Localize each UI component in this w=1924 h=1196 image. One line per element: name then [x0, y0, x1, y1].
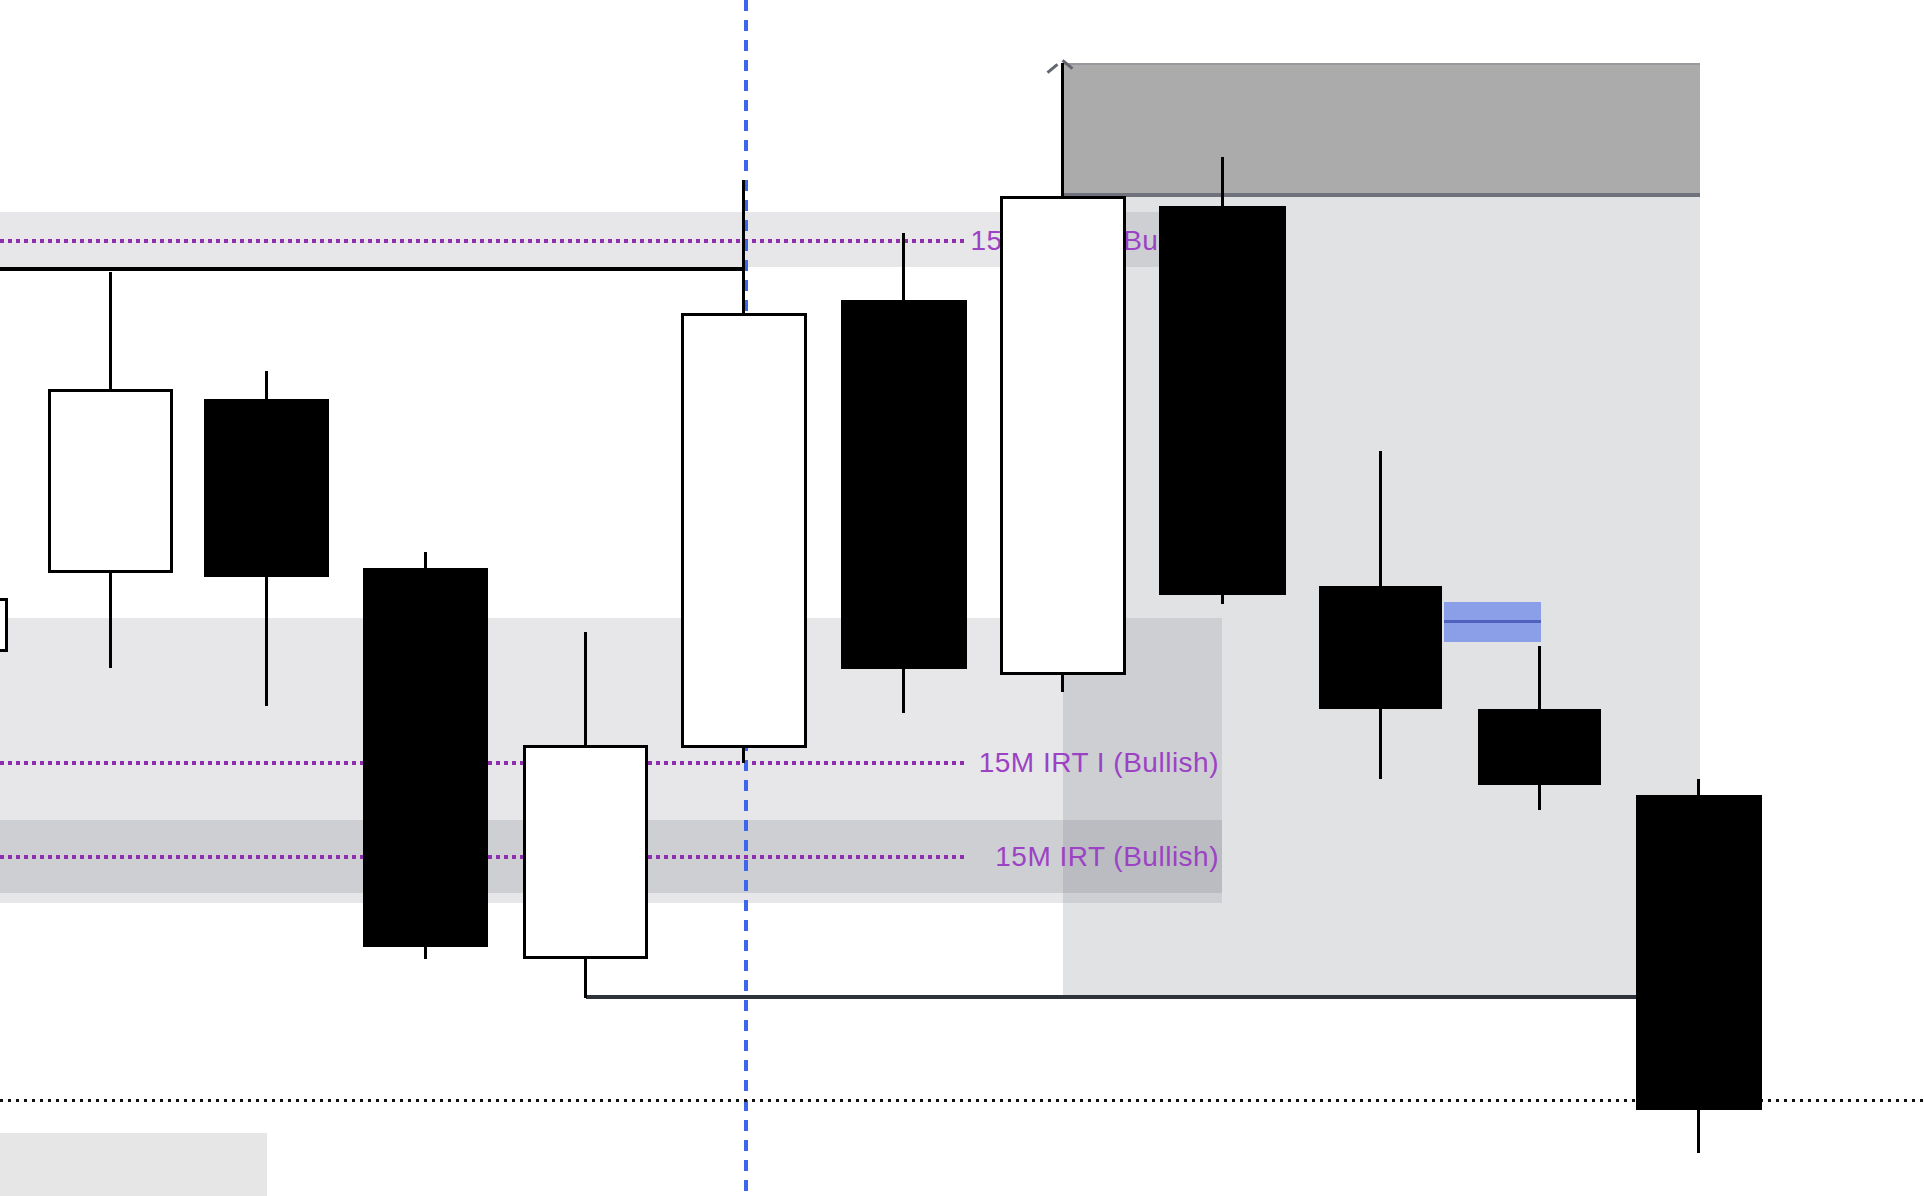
candle-body-bearish: [1478, 709, 1601, 785]
candle-body-bearish: [363, 568, 488, 947]
drawing-handle-mark[interactable]: [1047, 63, 1059, 74]
irt-level-label-bottom[interactable]: 15M IRT (Bullish): [995, 843, 1219, 871]
candle-body-bearish: [1319, 586, 1442, 709]
supply-header-box[interactable]: [1063, 63, 1700, 197]
candle-body-bearish: [204, 399, 329, 577]
candle-body-bullish: [681, 313, 807, 748]
low-structure-line[interactable]: [586, 995, 1690, 999]
candle-body-bullish: [1000, 196, 1126, 675]
candle-body-bullish: [48, 389, 173, 573]
upper-structure-line[interactable]: [0, 267, 745, 271]
candle-body-bearish: [1159, 206, 1286, 595]
candle-body-bullish: [523, 745, 648, 959]
chart-canvas: 15M IRT II (Bullish) 15M IRT I (Bullish)…: [0, 0, 1924, 1196]
irt-dotted-line-0[interactable]: [0, 239, 965, 243]
irt-level-label-middle[interactable]: 15M IRT I (Bullish): [979, 749, 1219, 777]
candle-body-bearish: [841, 300, 967, 669]
bottom-left-box[interactable]: [0, 1133, 267, 1196]
order-block-badge-line: [1444, 620, 1541, 623]
candle-body-bearish: [1636, 795, 1762, 1110]
candle-body-bullish: [0, 598, 8, 652]
